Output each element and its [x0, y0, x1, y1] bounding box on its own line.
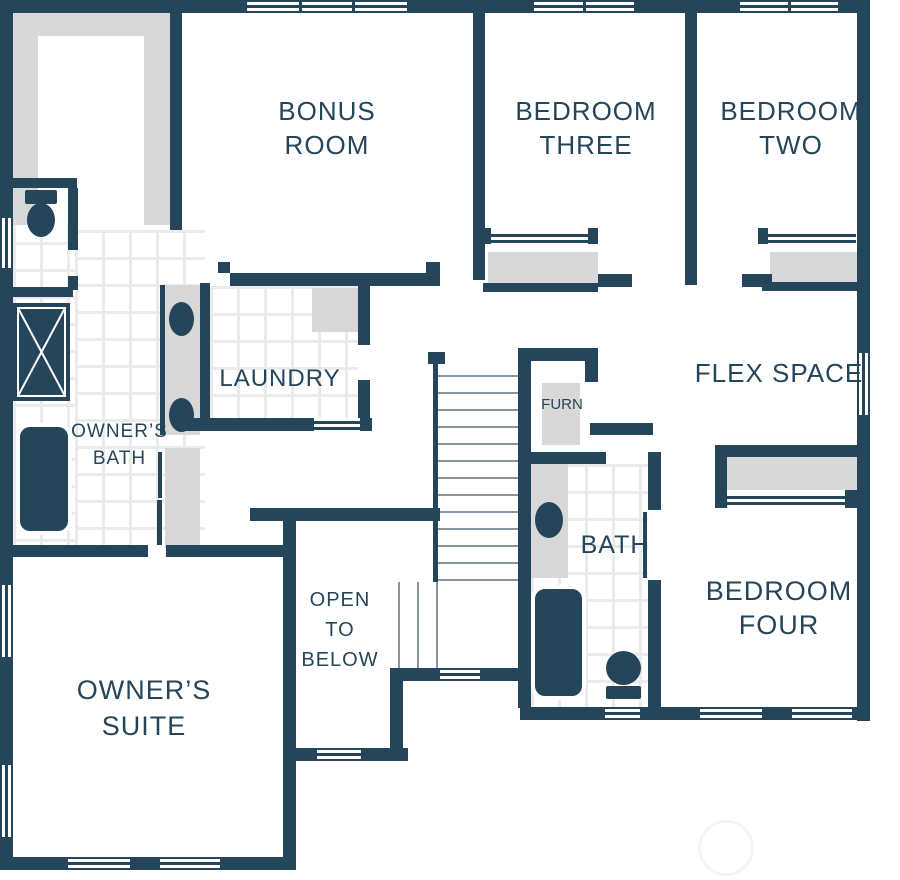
room-label-open-to-below: OPEN TO BELOW: [288, 585, 392, 675]
toilet: [606, 686, 641, 699]
bathtub: [531, 585, 586, 700]
sliding-closet-door: [490, 234, 590, 237]
owners-suite-door: [157, 500, 162, 545]
window: [160, 857, 220, 870]
window: [68, 857, 130, 870]
wall: [218, 262, 230, 273]
wall: [0, 0, 13, 870]
sliding-closet-door: [490, 240, 590, 243]
wall: [200, 283, 210, 431]
window: [440, 668, 480, 681]
room-label-owners-suite: OWNER’S SUITE: [44, 672, 244, 744]
room-label-bonus-room: BONUS ROOM: [227, 94, 427, 162]
stairs: [438, 360, 518, 582]
wall: [358, 283, 370, 345]
window: [605, 707, 640, 720]
bedroom-two-closet: [770, 252, 857, 283]
wall: [250, 508, 440, 521]
wall: [518, 348, 531, 708]
window: [0, 765, 13, 837]
wall: [68, 188, 78, 250]
window: [0, 585, 13, 657]
window-divider: [583, 0, 586, 13]
window: [247, 0, 407, 13]
door-jamb: [715, 490, 727, 508]
sliding-closet-door: [768, 234, 856, 237]
window-divider: [299, 0, 302, 13]
window: [0, 218, 13, 268]
room-label-bedroom-three: BEDROOM THREE: [486, 94, 686, 162]
room-label-bath: BATH: [565, 528, 665, 562]
sliding-closet-door: [727, 496, 852, 499]
wall: [426, 262, 440, 286]
wall: [170, 13, 182, 230]
wall: [715, 445, 857, 457]
wall: [230, 273, 426, 286]
wall: [598, 274, 632, 287]
wall: [283, 508, 296, 870]
room-label-furnace: FURN: [534, 396, 590, 414]
shower-icon: [13, 303, 70, 401]
wall: [13, 287, 73, 297]
room-label-owners-bath: OWNER’S BATH: [62, 418, 177, 472]
vanity-edge: [160, 285, 165, 435]
window-divider: [788, 0, 791, 13]
door-jamb: [758, 228, 768, 244]
room-label-bedroom-four: BEDROOM FOUR: [681, 574, 877, 642]
wall: [358, 380, 370, 420]
wall: [13, 178, 77, 188]
wall: [182, 418, 314, 431]
sliding-closet-door: [768, 240, 856, 243]
sink: [535, 502, 563, 538]
wall: [585, 361, 598, 382]
laundry-door: [314, 427, 360, 430]
wall: [166, 545, 283, 557]
stair-rail: [433, 358, 438, 582]
laundry-door: [314, 421, 360, 424]
railing: [398, 582, 440, 668]
room-label-flex-space: FLEX SPACE: [679, 356, 879, 390]
wall: [762, 282, 857, 291]
wall: [428, 352, 445, 364]
room-label-bedroom-two: BEDROOM TWO: [691, 94, 891, 162]
wall: [531, 452, 606, 464]
wall: [0, 857, 296, 870]
toilet: [25, 190, 57, 204]
window-divider: [352, 0, 355, 13]
shower: [13, 303, 70, 401]
wall: [483, 283, 598, 292]
toilet: [27, 203, 55, 237]
watermark-circle: [698, 820, 754, 876]
sliding-closet-door: [727, 502, 852, 505]
window: [317, 748, 361, 761]
floor-plan: BONUS ROOM BEDROOM THREE BEDROOM TWO OWN…: [0, 0, 900, 880]
wall: [648, 452, 661, 510]
door-jamb: [481, 228, 491, 244]
bedroom-four-closet: [727, 457, 857, 490]
bedroom-three-closet: [488, 252, 598, 284]
wall: [518, 348, 598, 361]
washer-dryer: [312, 288, 358, 332]
toilet: [606, 651, 641, 685]
room-label-laundry: LAUNDRY: [205, 362, 355, 396]
wall: [390, 680, 403, 761]
wall: [13, 545, 148, 557]
door-jamb: [588, 228, 598, 244]
wall: [590, 423, 653, 435]
sink: [169, 302, 194, 336]
door-jamb: [845, 490, 857, 508]
wall: [715, 445, 727, 490]
window: [700, 707, 762, 720]
furnace-closet: [542, 383, 580, 445]
window: [792, 707, 852, 720]
wall: [648, 580, 661, 708]
